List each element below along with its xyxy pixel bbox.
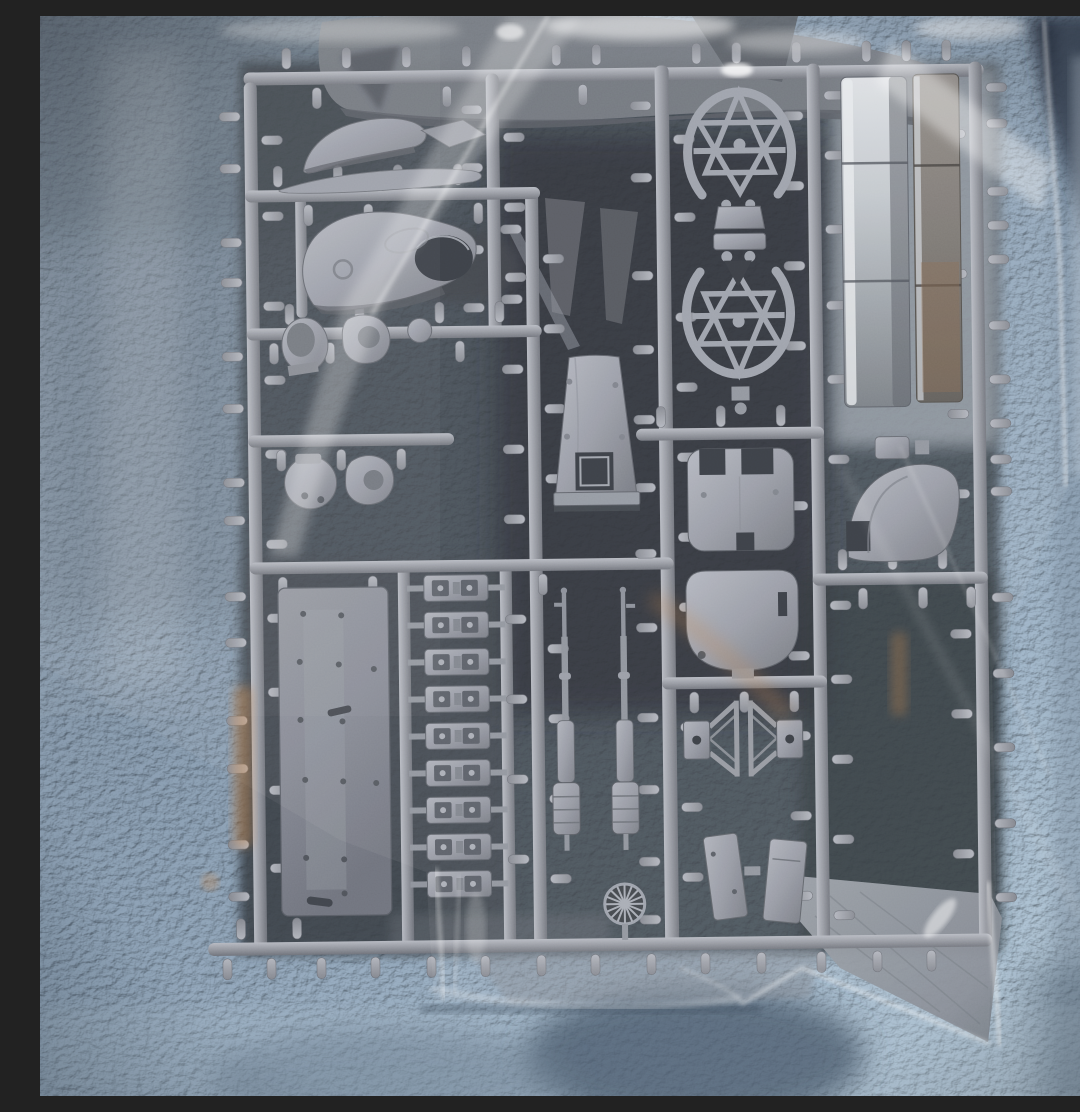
photo-canvas — [40, 16, 1080, 1096]
photo-grain — [40, 16, 1080, 1096]
photo-model-kit-sprue-in-bag — [40, 16, 1080, 1096]
